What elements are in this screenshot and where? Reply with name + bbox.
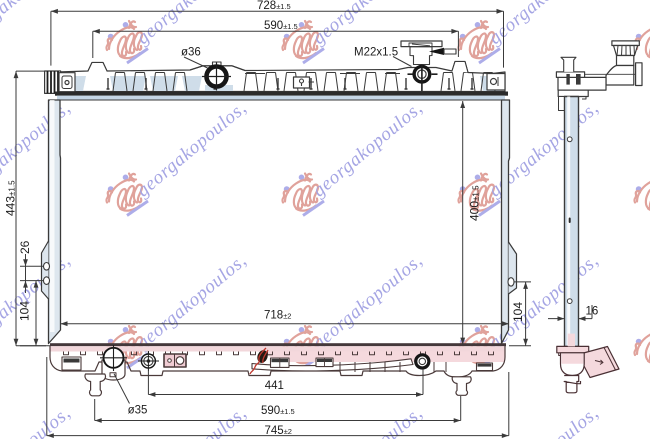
svg-text:ø35: ø35 bbox=[128, 405, 148, 417]
svg-text:M22x1.5: M22x1.5 bbox=[354, 47, 398, 59]
svg-text:745±2: 745±2 bbox=[265, 425, 292, 437]
svg-text:ø36: ø36 bbox=[181, 47, 201, 59]
svg-text:590±1.5: 590±1.5 bbox=[264, 20, 298, 32]
svg-text:16: 16 bbox=[586, 306, 599, 318]
svg-text:718±2: 718±2 bbox=[264, 310, 291, 322]
svg-text:104: 104 bbox=[511, 302, 525, 322]
svg-text:728±1.5: 728±1.5 bbox=[257, 0, 291, 12]
svg-text:590±1.5: 590±1.5 bbox=[261, 405, 295, 417]
svg-text:104: 104 bbox=[18, 301, 32, 321]
svg-text:441: 441 bbox=[265, 380, 284, 392]
svg-text:26: 26 bbox=[18, 240, 32, 254]
